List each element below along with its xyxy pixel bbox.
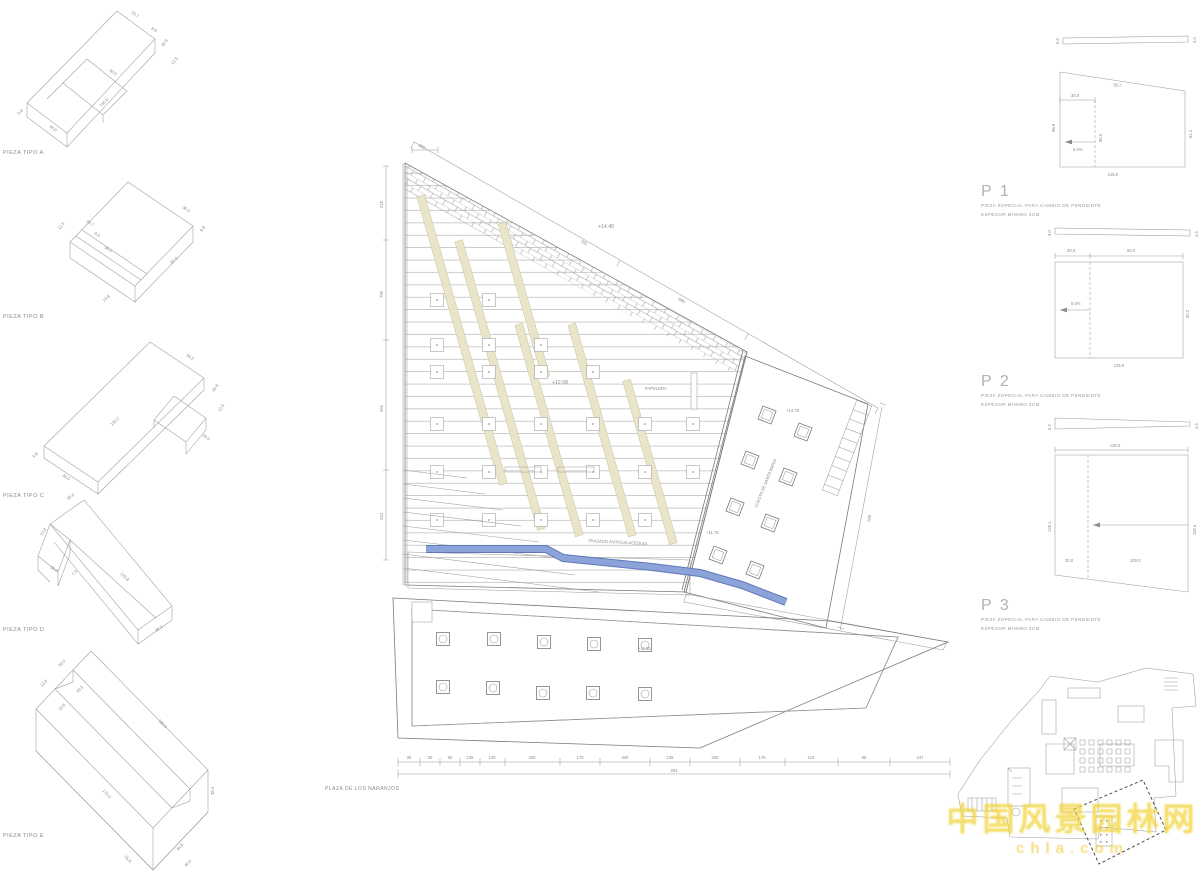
dim: 36.3 [181,205,191,214]
svg-text:33.7: 33.7 [1113,82,1122,88]
keymap-buildings [968,678,1183,816]
svg-text:3.0: 3.0 [1047,230,1052,236]
svg-text:30.0: 30.0 [1067,248,1076,253]
dim: 13.8 [39,678,49,688]
svg-text:30: 30 [428,755,433,760]
dim: 13.8 [101,293,111,303]
dim: 40.0 [108,68,118,77]
svg-text:130.0: 130.0 [1110,443,1121,448]
key-map [950,648,1200,877]
dim: 175.0 [101,788,112,799]
dim: 36.2 [154,624,164,633]
keymap-site-highlight [1074,780,1166,864]
dim: 25.8 [123,854,133,864]
detail-p2: 3.0 4.5 30.0 95.0 5.0% 90.2 125.0 P 2 PI… [981,228,1199,407]
svg-text:340: 340 [712,755,720,760]
svg-text:ESPESOR MINIMO 4CM: ESPESOR MINIMO 4CM [981,402,1040,407]
p3-profile [1055,418,1190,429]
dim: 38.4 [210,786,215,795]
p3-title: P 3 [981,597,1011,614]
piece-a-linework [27,11,155,147]
dim: 40.0 [183,858,193,868]
dim: 30.5 [75,684,85,694]
detail-p3: 6.2 4.5 130.0 129.1 118.6 30.0 100.0 P 3… [981,418,1199,631]
p2-profile [1055,228,1190,236]
svg-text:30: 30 [407,755,412,760]
svg-text:5.0%: 5.0% [1073,147,1083,152]
dim: 8.0 [93,231,101,239]
svg-text:85.0: 85.0 [1098,133,1103,142]
dim: 180.0 [157,718,168,729]
svg-text:6.2: 6.2 [1047,424,1052,430]
p1-plan-shape [1060,72,1185,167]
piece-a-label: PIEZA TIPO A [3,150,44,156]
bottom-dim-labels: 30 30 90 135 120 340 170 340 135 340 170… [407,755,924,760]
svg-text:4.5: 4.5 [1194,423,1199,429]
svg-text:98.8: 98.8 [1051,123,1056,132]
svg-text:100.0: 100.0 [1130,558,1141,563]
svg-text:ESPESOR MINIMO 4CM: ESPESOR MINIMO 4CM [981,212,1040,217]
svg-text:118.6: 118.6 [1192,524,1197,535]
dim-left-3: 410 [379,512,384,520]
svg-text:90: 90 [448,755,453,760]
dim: 30.0 [57,658,67,668]
dim: 87.0 [169,255,179,265]
detail-drawings: 5.5 4.0 30.0 33.7 98.8 85.0 5.0% 81.4 12… [975,20,1200,640]
level-cuesta-low: +11.75 [706,530,719,535]
p1-title: P 1 [981,183,1011,200]
upper-plaza [395,161,750,595]
level-naranjos: +11.35 [638,646,651,651]
level-mid: +12.08 [552,380,568,386]
svg-text:PIEZA ESPECIAL PARA CAMBIO DE: PIEZA ESPECIAL PARA CAMBIO DE PENDIENTE [981,617,1101,622]
cuesta-stairs [822,400,871,495]
naranjos-plaza [393,598,948,748]
piece-e-linework [36,651,208,870]
svg-text:125.0: 125.0 [1108,172,1119,177]
level-cuesta-top: +14.75 [786,408,800,413]
dim: 36.0 [66,492,76,501]
dim: 23.7 [130,10,140,19]
svg-text:170: 170 [577,755,585,760]
svg-text:81.4: 81.4 [1188,129,1193,138]
piece-e-label: PIEZA TIPO E [3,833,44,839]
svg-text:4.5: 4.5 [1194,231,1199,237]
dim: 129.8 [119,571,130,582]
piece-d-drawing: 36.0 13.8 30.2 7.5 129.8 36.2 [38,478,243,658]
piece-d-label: PIEZA TIPO D [3,627,44,633]
keymap-boundary [958,668,1196,839]
svg-text:95.0: 95.0 [1127,248,1136,253]
dim: 44.8 [175,842,185,852]
dim: 130.2 [109,415,120,426]
main-plan: +14.40 +12.08 PAPELERA +14.75 +11.75 +11… [320,140,980,820]
piece-d-linework [38,500,172,644]
svg-text:135: 135 [667,755,675,760]
piece-b-linework [70,182,193,302]
drawing-sheet: 23.7 8.0 30.8 12.8 40.0 130.0 36.0 9.8 P… [0,0,1200,877]
svg-text:90.2: 90.2 [1185,309,1190,318]
tree-planters [437,633,652,701]
dim: 50.2 [185,353,195,362]
dim: 8.0 [150,26,158,34]
svg-text:125.0: 125.0 [1114,363,1125,368]
dim: 12.8 [170,56,179,66]
svg-text:135: 135 [467,755,475,760]
dim: 30.8 [160,38,169,48]
dim: 12.5 [57,220,66,230]
dim-slope-a: 750 [580,239,589,247]
dim-left-0: 218 [379,200,384,208]
p2-title: P 2 [981,373,1011,390]
p3-plan-shape [1055,455,1188,592]
piece-b-label: PIEZA TIPO B [3,314,44,320]
piece-b-drawing: 36.3 9.8 12.5 23.7 8.0 36.0 87.0 13.8 [30,168,230,318]
svg-text:170: 170 [759,755,767,760]
papelera-element [691,373,697,409]
level-top: +14.40 [598,224,614,230]
svg-text:120: 120 [489,755,497,760]
large-register [412,602,432,622]
dim: 13.6 [217,402,226,412]
svg-text:110: 110 [808,755,815,760]
dim-right-side: 590 [866,514,872,522]
svg-text:96: 96 [862,755,867,760]
dim: 30.0 [201,433,211,442]
svg-text:129.1: 129.1 [1047,521,1052,532]
dim-left-1: 795 [379,290,384,298]
dim: 23.7 [85,219,95,228]
dim-left-2: 656 [379,404,384,412]
dim: 13.8 [39,526,48,536]
svg-text:5.5: 5.5 [1055,38,1060,44]
piece-a-drawing: 23.7 8.0 30.8 12.8 40.0 130.0 36.0 9.8 [5,3,240,163]
piece-e-drawing: 30.0 13.8 30.5 12.8 180.0 175.0 25.8 44.… [18,643,243,877]
dim: 9.8 [199,224,207,232]
svg-text:PIEZA ESPECIAL PARA CAMBIO DE: PIEZA ESPECIAL PARA CAMBIO DE PENDIENTE [981,203,1101,208]
svg-text:340: 340 [529,755,537,760]
svg-text:4.0: 4.0 [1192,37,1197,43]
svg-text:247: 247 [917,755,925,760]
plaza-title: PLAZA DE LOS NARANJOS [325,786,399,792]
svg-text:5.0%: 5.0% [1071,301,1081,306]
bottom-dim-total: 281 [671,768,679,773]
dim-top-corner: 300 [418,143,427,151]
cuesta-label: CUESTA DE SANTA MARIA [753,458,777,509]
svg-text:30.0: 30.0 [1065,558,1074,563]
detail-p1: 5.5 4.0 30.0 33.7 98.8 85.0 5.0% 81.4 12… [981,36,1197,217]
dim: 9.8 [31,451,39,459]
p1-profile [1063,36,1188,44]
svg-text:PIEZA ESPECIAL PARA CAMBIO DE: PIEZA ESPECIAL PARA CAMBIO DE PENDIENTE [981,393,1101,398]
dim: 36.0 [103,245,113,254]
dim: 12.8 [57,702,67,712]
dim: 9.8 [16,108,24,116]
svg-text:340: 340 [622,755,630,760]
dim: 7.5 [71,568,79,576]
dim: 30.8 [211,382,220,392]
dim: 130.0 [98,96,110,107]
piece-c-linework [44,342,206,494]
papelera-label: PAPELERA [645,386,667,391]
svg-text:30.0: 30.0 [1071,93,1080,98]
svg-text:ESPESOR MINIMO 4CM: ESPESOR MINIMO 4CM [981,626,1040,631]
